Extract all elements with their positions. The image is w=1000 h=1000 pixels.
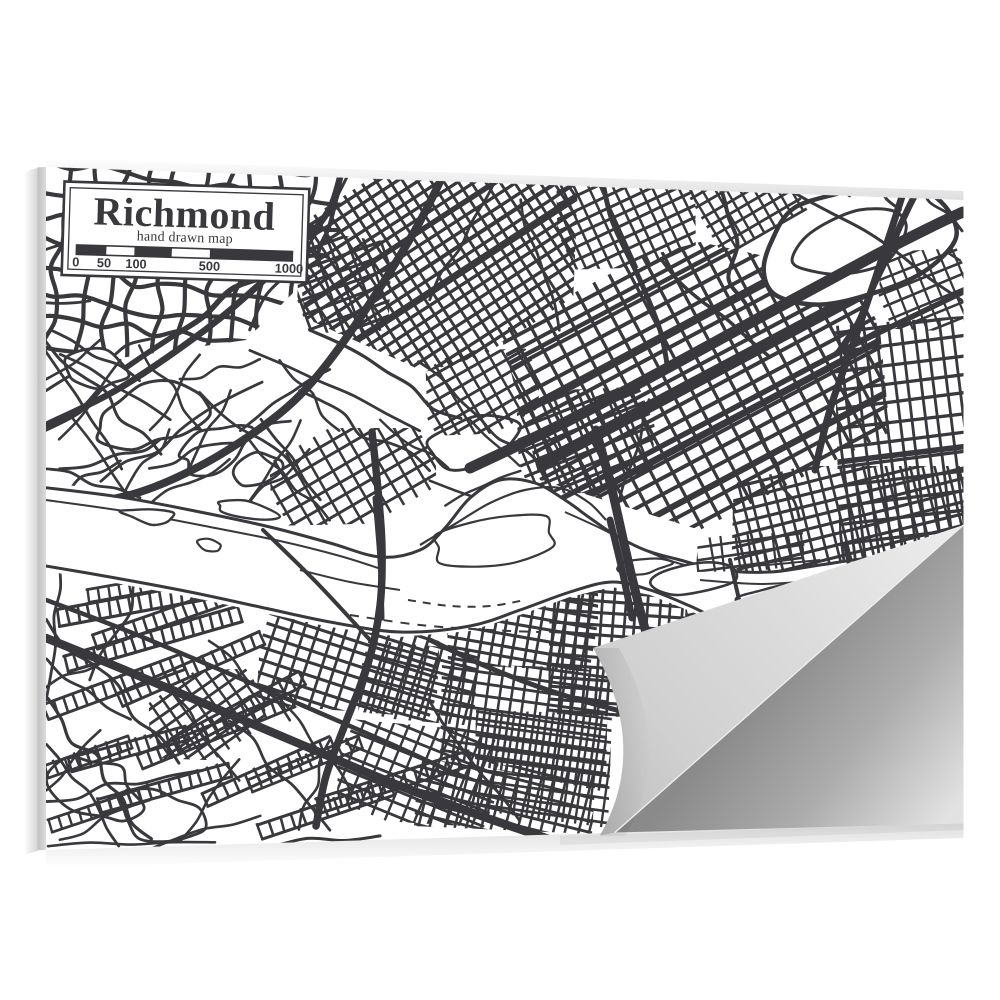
svg-text:0: 0 [72,254,80,269]
svg-text:1000: 1000 [274,260,303,276]
svg-text:hand drawn map: hand drawn map [137,229,234,247]
svg-text:500: 500 [199,258,221,274]
svg-text:100: 100 [125,256,147,272]
svg-text:50: 50 [97,255,112,270]
